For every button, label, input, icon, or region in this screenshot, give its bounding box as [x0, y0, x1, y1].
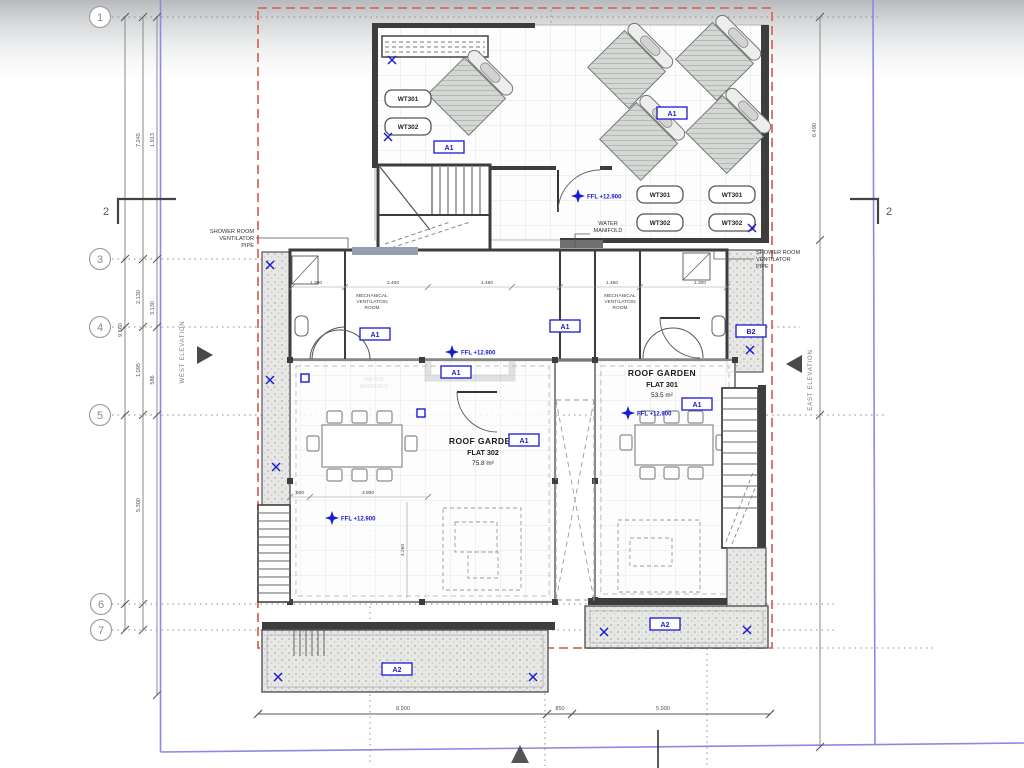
dim-left-4: 3.130: [150, 301, 156, 315]
svg-text:MECHANICAL: MECHANICAL: [356, 293, 388, 299]
svg-text:ROOM: ROOM: [613, 305, 628, 311]
tag-a1: A1: [441, 366, 471, 378]
toilet: [295, 316, 308, 336]
dim-left-2: 9.660: [118, 323, 124, 337]
west-elevation-marker: WEST ELEVATION: [180, 321, 213, 384]
right-exterior-stair: [722, 385, 766, 555]
dim-left-3: 2.130: [136, 290, 142, 304]
dim-right-top: 6.490: [812, 123, 818, 137]
svg-text:1: 1: [97, 12, 103, 24]
rooms-outline: [290, 250, 727, 360]
stairwell: [378, 165, 490, 258]
svg-text:PIPE: PIPE: [241, 243, 254, 249]
svg-text:5: 5: [97, 410, 103, 422]
grid-bubble-6: 6: [91, 594, 112, 615]
tag-a1: A1: [360, 328, 390, 340]
svg-text:850: 850: [555, 706, 564, 712]
svg-text:2: 2: [886, 206, 892, 218]
left-dimension-ticks: [121, 13, 161, 699]
toilet: [712, 316, 725, 336]
svg-text:4: 4: [97, 322, 103, 334]
shower-tray: [683, 253, 710, 280]
svg-text:VENTILATOR: VENTILATOR: [219, 236, 254, 242]
dim-left-6: 586: [150, 375, 156, 384]
vent-duct: [352, 247, 418, 255]
svg-text:ROOF GARDEN: ROOF GARDEN: [628, 368, 696, 378]
svg-text:MECHANICAL: MECHANICAL: [604, 293, 636, 299]
svg-text:WT301: WT301: [650, 192, 671, 199]
flat301-roof-garden: ROOF GARDEN FLAT 301 53.5 m²: [592, 318, 738, 603]
east-elevation-marker: EAST ELEVATION: [786, 349, 814, 410]
vent-duct: [560, 240, 603, 248]
left-dimension-texts: 7.245 1.913 9.660 2.130 3.130 1.095 586 …: [118, 133, 156, 512]
tag-a2: A2: [382, 663, 412, 675]
tag-a1: A1: [550, 320, 580, 332]
svg-text:8.900: 8.900: [396, 706, 410, 712]
svg-text:53.5 m²: 53.5 m²: [651, 392, 673, 399]
svg-text:WT302: WT302: [398, 124, 419, 131]
svg-text:WEST ELEVATION: WEST ELEVATION: [180, 321, 186, 384]
svg-text:FFL +12.900: FFL +12.900: [637, 412, 672, 418]
shower-tray: [292, 256, 318, 284]
svg-text:1.450: 1.450: [606, 280, 618, 286]
svg-text:4.260: 4.260: [400, 544, 406, 556]
svg-text:VENTILATION: VENTILATION: [604, 299, 636, 305]
svg-text:ROOM: ROOM: [365, 305, 380, 311]
svg-text:WT301: WT301: [398, 96, 419, 103]
tag-a1: A1: [682, 398, 712, 410]
grid-bubble-3: 3: [90, 249, 111, 270]
svg-text:3: 3: [97, 254, 103, 266]
shower-vent-note-left: SHOWER ROOM VENTILATOR PIPE: [210, 229, 348, 249]
dim-left-0: 7.245: [136, 133, 142, 147]
svg-text:7: 7: [98, 625, 104, 637]
tag-a1: A1: [434, 141, 464, 153]
dim-left-7: 5.300: [136, 498, 142, 512]
svg-text:A1: A1: [520, 438, 529, 445]
grid-bubble-7: 7: [91, 620, 112, 641]
svg-text:A1: A1: [668, 111, 677, 118]
svg-text:2.400: 2.400: [387, 280, 399, 286]
svg-text:FFL +12.900: FFL +12.900: [587, 195, 622, 201]
svg-text:WT301: WT301: [722, 192, 743, 199]
svg-text:6: 6: [98, 599, 104, 611]
grid-bubble-4: 4: [90, 317, 111, 338]
tag-a1: A1: [657, 107, 687, 119]
svg-text:75.8 m²: 75.8 m²: [472, 460, 494, 467]
floor-plan-drawing: 7.245 1.913 9.660 2.130 3.130 1.095 586 …: [0, 0, 1024, 768]
section-marker-right: 2: [850, 199, 892, 224]
tag-a1: A1: [509, 434, 539, 446]
svg-text:FLAT 301: FLAT 301: [646, 380, 678, 389]
svg-text:B2: B2: [747, 329, 756, 336]
tank-label-wt301: WT301: [709, 186, 755, 203]
grid-bubble-1: 1: [90, 7, 111, 28]
tag-a2: A2: [650, 618, 680, 630]
section-marker-left: 2: [103, 199, 176, 224]
svg-text:2: 2: [103, 206, 109, 218]
svg-text:EAST ELEVATION: EAST ELEVATION: [808, 349, 814, 410]
svg-text:FFL +12.900: FFL +12.900: [341, 517, 376, 523]
svg-text:A1: A1: [371, 332, 380, 339]
floor-plan-sheet: 7.245 1.913 9.660 2.130 3.130 1.095 586 …: [0, 0, 1024, 768]
svg-text:ROOF GARDEN: ROOF GARDEN: [449, 436, 517, 446]
left-dimension-lines: [125, 17, 157, 695]
svg-text:A1: A1: [561, 324, 570, 331]
svg-text:3.800: 3.800: [362, 490, 374, 496]
tag-b2: B2: [736, 325, 766, 337]
svg-text:FLAT 302: FLAT 302: [467, 448, 499, 457]
svg-text:A1: A1: [452, 370, 461, 377]
tank-label-wt302: WT302: [709, 214, 755, 231]
svg-text:PIPE: PIPE: [756, 264, 769, 270]
svg-text:VENTILATOR: VENTILATOR: [756, 257, 791, 263]
bottom-left-planter-strip: [262, 622, 555, 692]
svg-text:A1: A1: [693, 402, 702, 409]
svg-text:600: 600: [296, 490, 304, 496]
exterior-wall-strip-right-lower: [727, 548, 766, 608]
dim-left-5: 1.095: [136, 363, 142, 377]
svg-text:A2: A2: [393, 667, 402, 674]
svg-text:FFL +12.900: FFL +12.900: [461, 351, 496, 357]
pergola: [556, 400, 594, 600]
svg-text:WT302: WT302: [650, 220, 671, 227]
tank-label-wt301: WT301: [385, 90, 431, 107]
svg-text:WT302: WT302: [722, 220, 743, 227]
svg-text:A2: A2: [661, 622, 670, 629]
tank-label-wt301: WT301: [637, 186, 683, 203]
grid-bubbles: 1 3 4 5 6 7: [90, 7, 112, 641]
svg-text:SHOWER ROOM: SHOWER ROOM: [210, 229, 254, 235]
svg-text:A1: A1: [445, 145, 454, 152]
bottom-dimension-line: 8.900 850 5.990: [254, 706, 774, 718]
left-exterior-stair: [258, 505, 290, 602]
svg-text:1.300: 1.300: [310, 280, 322, 286]
svg-text:WATER: WATER: [598, 221, 618, 227]
svg-text:MANIFOLD: MANIFOLD: [594, 228, 623, 234]
svg-text:SHOWER ROOM: SHOWER ROOM: [756, 250, 800, 256]
tank-label-wt302: WT302: [385, 118, 431, 135]
flat302-roof-garden: ROOF GARDEN FLAT 302 75.8 m² 600 3.800 4…: [287, 357, 558, 605]
dim-left-1: 1.913: [150, 133, 156, 147]
svg-text:1.300: 1.300: [694, 280, 706, 286]
svg-text:VENTILATION: VENTILATION: [356, 299, 388, 305]
svg-text:5.990: 5.990: [656, 706, 670, 712]
tank-label-wt302: WT302: [637, 214, 683, 231]
svg-text:1.450: 1.450: [481, 280, 493, 286]
grid-bubble-5: 5: [90, 405, 111, 426]
